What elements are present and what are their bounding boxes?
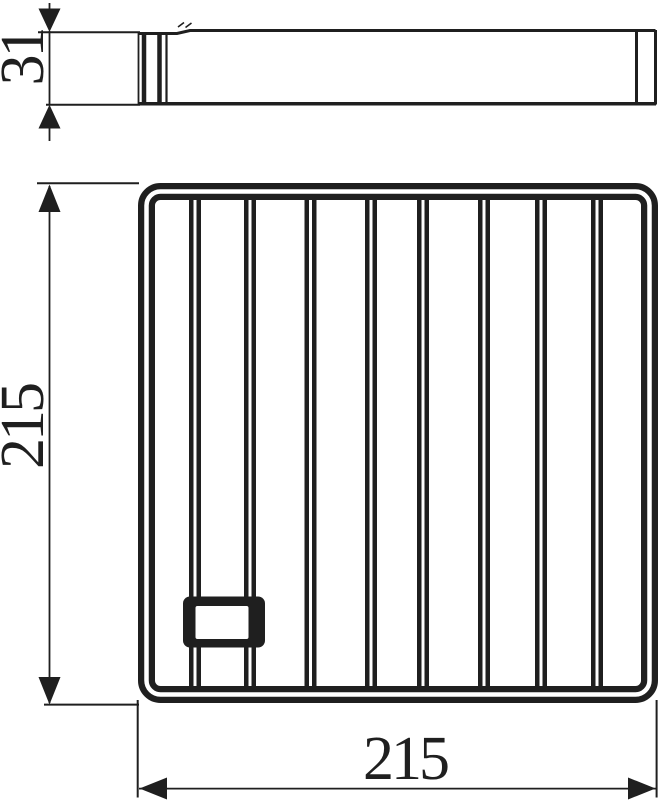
arrowhead-right-icon [628, 778, 656, 800]
dimension-front-width: 215 [138, 700, 657, 800]
side-view [139, 23, 657, 105]
arrowhead-down-icon [39, 9, 61, 33]
side-view-break-ticks [178, 23, 192, 28]
arrowhead-down-icon [39, 677, 61, 705]
dimension-side-height: 31 [0, 3, 140, 141]
clamp-bracket [183, 597, 265, 648]
drawing-canvas: 31 [0, 0, 659, 800]
technical-drawing: 31 [0, 0, 659, 800]
arrowhead-up-icon [39, 105, 61, 129]
dimension-label-front-height: 215 [0, 384, 57, 469]
front-view [147, 192, 650, 695]
dimension-label-front-width: 215 [363, 725, 448, 793]
side-view-top-edge [139, 31, 656, 34]
dimension-label-side-height: 31 [0, 30, 57, 86]
arrowhead-left-icon [140, 778, 168, 800]
clamp-inner [196, 606, 249, 639]
arrowhead-up-icon [39, 185, 61, 213]
dimension-front-height: 215 [0, 183, 139, 704]
